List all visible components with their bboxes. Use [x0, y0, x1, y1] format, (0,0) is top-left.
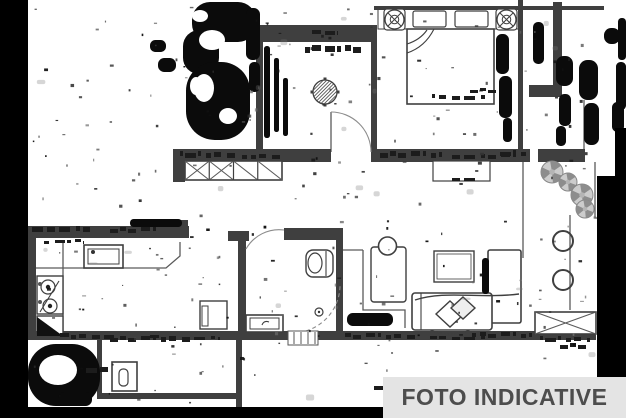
speckle: [82, 295, 86, 296]
noise-dash: [481, 95, 485, 99]
speckle: [43, 197, 44, 200]
speckle: [478, 162, 482, 165]
speckle: [419, 203, 422, 206]
smudge: [37, 80, 46, 84]
speckle: [101, 298, 103, 299]
speckle: [360, 303, 362, 305]
noise-blob: [556, 126, 566, 146]
speckle: [96, 29, 99, 31]
plant-4: [576, 200, 594, 218]
photo-indicative-banner: FOTO INDICATIVE: [383, 377, 626, 418]
speckle: [136, 324, 137, 327]
lower-room-south-wall: [97, 393, 242, 399]
speckle: [551, 177, 552, 180]
smudge: [341, 127, 346, 131]
speckle: [229, 165, 231, 167]
speckle: [362, 171, 365, 173]
speckle: [343, 196, 346, 199]
speckle: [443, 265, 445, 267]
speckle: [200, 215, 203, 218]
wall-sconce-left: [384, 9, 405, 30]
speckle: [156, 254, 159, 256]
noise-blob: [612, 102, 624, 132]
noise-dash: [153, 227, 156, 231]
noise-dash: [558, 336, 561, 340]
speckle: [475, 170, 478, 172]
noise-dash: [394, 334, 401, 338]
speckle: [219, 284, 221, 285]
speckle: [252, 233, 254, 236]
noise-blob: [496, 34, 509, 74]
speckle: [79, 308, 81, 310]
speckle: [504, 221, 507, 223]
speckle: [123, 304, 126, 307]
speckle: [155, 45, 157, 46]
speckle: [418, 334, 420, 336]
speckle: [583, 168, 586, 169]
speckle: [119, 205, 122, 208]
smudge: [552, 46, 558, 50]
speckle: [279, 314, 283, 316]
hall-ceiling-light-tick: [311, 91, 314, 94]
speckle: [318, 335, 320, 337]
speckle: [480, 274, 483, 277]
speckle: [293, 87, 296, 89]
noise-dash: [325, 31, 335, 35]
speckle: [524, 70, 526, 71]
speckle: [386, 369, 387, 371]
noise-dash: [214, 152, 221, 157]
speckle: [270, 54, 272, 55]
speckle: [394, 140, 396, 143]
water-heater: [112, 362, 137, 391]
speckle: [139, 199, 142, 202]
speckle: [52, 317, 55, 319]
noise-dash: [259, 154, 266, 158]
noise-dash: [378, 333, 381, 337]
noise-dash: [182, 338, 190, 342]
speckle: [110, 65, 114, 67]
speckle: [534, 31, 535, 33]
wardrobe-window-southeast: [535, 312, 596, 334]
noise-dash: [439, 95, 446, 99]
speckle: [387, 220, 389, 222]
speckle: [112, 364, 114, 366]
speckle: [56, 120, 59, 121]
speckle: [573, 344, 576, 346]
right-border-bar: [597, 176, 626, 378]
speckle: [154, 390, 156, 391]
speckle: [109, 393, 110, 395]
noise-dash: [390, 151, 396, 156]
noise-dash: [60, 333, 69, 337]
south-bedroom-wall-right2: [538, 149, 585, 162]
bed: [407, 29, 494, 104]
speckle: [313, 172, 316, 175]
speckle: [311, 159, 315, 162]
speckle: [110, 121, 112, 123]
speckle: [183, 66, 185, 67]
smudge: [306, 395, 314, 401]
noise-blob: [604, 28, 620, 44]
noise-dash: [76, 226, 80, 231]
speckle: [533, 38, 537, 40]
noise-dash: [312, 45, 321, 51]
speckle: [193, 165, 197, 167]
stove-knob-1: [38, 282, 42, 286]
speckle: [222, 365, 223, 367]
speckle: [154, 23, 157, 24]
speckle: [526, 129, 527, 130]
speckle: [446, 110, 450, 111]
speckle: [370, 27, 372, 28]
noise-dash: [47, 227, 55, 232]
speckle: [338, 161, 341, 163]
speckle: [191, 298, 193, 301]
speckle: [377, 77, 380, 80]
noise-hole: [192, 10, 208, 22]
speckle: [226, 317, 228, 319]
noise-dash: [83, 241, 84, 244]
speckle: [455, 321, 458, 322]
noise-dash: [337, 46, 341, 52]
speckle: [370, 13, 373, 15]
noise-dash: [488, 90, 496, 93]
noise-dash: [439, 152, 442, 157]
speckle: [132, 179, 135, 181]
speckle: [203, 277, 204, 278]
noise-dash: [380, 153, 388, 158]
speckle: [105, 21, 106, 23]
noise-dash: [185, 153, 196, 158]
smudge: [341, 17, 347, 21]
speckle: [199, 372, 202, 375]
speckle: [376, 275, 377, 278]
noise-dash: [325, 46, 335, 52]
speckle: [573, 334, 575, 336]
noise-dash: [180, 151, 183, 156]
noise-dash: [161, 338, 166, 342]
speckle: [545, 114, 548, 117]
speckle: [267, 23, 269, 26]
noise-blob: [556, 56, 573, 86]
bath-east-wall: [336, 228, 343, 334]
speckle: [189, 248, 191, 250]
smudge: [218, 186, 224, 191]
noise-dash: [211, 336, 215, 339]
speckle: [71, 84, 75, 87]
noise-dash: [578, 345, 586, 349]
speckle: [479, 90, 483, 92]
noise-dash: [398, 153, 406, 158]
noise-dash: [501, 332, 510, 336]
noise-dash: [32, 227, 43, 232]
speckle: [391, 352, 393, 354]
speckle: [368, 323, 370, 326]
speckle: [349, 100, 353, 103]
noise-dash: [407, 335, 415, 339]
plant-2-center: [566, 180, 571, 185]
noise-dash: [521, 334, 526, 338]
noise-blob: [579, 60, 598, 100]
noise-dash: [337, 31, 338, 35]
noise-hole: [39, 355, 77, 385]
speckle: [38, 136, 40, 138]
noise-dash: [439, 336, 446, 339]
speckle: [388, 249, 390, 250]
noise-dash: [100, 367, 108, 372]
speckle: [160, 258, 163, 259]
speckle: [433, 116, 435, 117]
coffee-table: [434, 251, 474, 282]
speckle: [585, 152, 588, 155]
speckle: [138, 173, 140, 176]
speckle: [156, 125, 158, 127]
speckle: [149, 248, 151, 249]
noise-dash: [452, 337, 460, 340]
sofa-chaise: [488, 250, 521, 323]
noise-dash: [75, 239, 81, 242]
plant-4-center: [583, 207, 588, 212]
speckle: [200, 343, 202, 345]
speckle: [94, 188, 97, 189]
noise-blob: [58, 392, 92, 406]
smudge: [374, 191, 380, 196]
speckle: [347, 8, 350, 10]
banner-label: FOTO INDICATIVE: [402, 384, 608, 411]
noise-dash: [464, 337, 475, 340]
noise-dash: [411, 151, 420, 156]
noise-blob: [618, 18, 626, 60]
speckle: [242, 121, 245, 122]
speckle: [543, 358, 546, 360]
noise-dash: [452, 96, 460, 100]
speckle: [426, 68, 427, 69]
speckle: [355, 196, 358, 198]
speckle: [33, 141, 35, 143]
smudge: [588, 352, 595, 357]
plant-1-center: [549, 169, 555, 175]
speckle: [334, 103, 336, 104]
noise-dash: [169, 337, 176, 341]
plant-3-center: [579, 192, 585, 198]
speckle: [435, 350, 438, 351]
speckle: [122, 285, 123, 286]
noise-dash: [464, 155, 475, 159]
speckle: [463, 133, 466, 135]
floorplan-screenshot: FOTO INDICATIVE: [0, 0, 626, 418]
door-threshold-frame: [288, 331, 318, 345]
noise-blob: [264, 46, 270, 138]
speckle: [497, 111, 498, 113]
speckle: [423, 20, 426, 22]
noise-dash: [545, 338, 556, 342]
noise-blob: [347, 313, 393, 326]
noise-dash: [305, 47, 310, 53]
noise-dash: [470, 90, 478, 93]
speckle: [51, 332, 54, 333]
noise-blob: [158, 58, 176, 72]
noise-dash: [141, 336, 150, 340]
speckle: [206, 228, 210, 230]
speckle: [74, 251, 78, 253]
noise-dash: [206, 153, 211, 158]
smudge: [462, 298, 471, 300]
speckle: [554, 60, 557, 63]
speckle: [332, 247, 334, 250]
stove-knob-2: [38, 300, 42, 304]
lower-room-east-wall: [236, 340, 242, 410]
speckle: [279, 33, 282, 34]
noise-blob: [150, 40, 166, 52]
noise-dash: [353, 47, 361, 53]
speckle: [425, 241, 428, 243]
speckle: [76, 183, 78, 185]
speckle: [365, 363, 368, 364]
noise-dash: [560, 345, 568, 349]
smudge: [256, 85, 261, 90]
speckle: [390, 296, 394, 297]
speckle: [382, 56, 386, 58]
speckle: [289, 44, 290, 46]
speckle: [580, 301, 584, 302]
speckle: [295, 198, 297, 199]
speckle: [142, 34, 144, 36]
noise-dash: [574, 337, 581, 341]
noise-dash: [92, 335, 100, 339]
speckle: [569, 160, 573, 162]
window-wall-endcap: [173, 149, 185, 182]
speckle: [80, 368, 83, 370]
noise-dash: [513, 332, 516, 336]
noise-dash: [110, 338, 118, 342]
speckle: [86, 124, 89, 126]
noise-blob: [584, 103, 599, 145]
bath-west-wall: [238, 240, 246, 334]
speckle: [249, 119, 251, 120]
noise-blob: [274, 58, 279, 132]
speckle: [311, 47, 313, 50]
smudge: [356, 185, 364, 190]
speckle: [198, 283, 202, 284]
noise-dash: [59, 227, 70, 232]
speckle: [59, 252, 60, 254]
speckle: [369, 84, 371, 86]
noise-dash: [153, 336, 156, 340]
noise-dash: [120, 227, 126, 231]
speckle: [219, 256, 221, 258]
noise-dash: [488, 155, 496, 159]
speckle: [277, 45, 280, 46]
noise-blob: [283, 78, 288, 136]
right-border-bar-upper: [615, 128, 626, 178]
smudge: [276, 303, 281, 308]
speckle: [82, 309, 84, 311]
noise-dash: [55, 240, 65, 243]
speckle: [581, 44, 584, 47]
noise-dash: [110, 229, 118, 233]
speckle: [86, 80, 88, 82]
noise-hole: [219, 108, 237, 124]
noise-dash: [67, 240, 71, 243]
speckle: [552, 241, 555, 243]
noise-blob: [533, 22, 544, 64]
speckle: [35, 9, 37, 10]
noise-dash: [345, 45, 351, 51]
bath-top-wall: [284, 228, 342, 240]
speckle: [264, 278, 268, 281]
speckle: [458, 312, 460, 314]
speckle: [316, 157, 318, 160]
speckle: [459, 334, 463, 336]
noise-dash: [86, 368, 97, 373]
pillow-right: [455, 11, 488, 27]
speckle: [555, 97, 558, 99]
noise-dash: [366, 333, 375, 337]
speckle: [174, 327, 176, 328]
noise-dash: [128, 229, 136, 233]
speckle: [272, 310, 273, 312]
noise-dash: [500, 152, 511, 156]
noise-dash: [431, 153, 436, 158]
noise-dash: [227, 153, 235, 158]
speckle: [564, 259, 565, 260]
speckle: [283, 12, 287, 13]
speckle: [335, 284, 337, 287]
stove-burner-2-dot: [48, 304, 52, 308]
bottom-border-bar: [0, 407, 384, 418]
speckle: [321, 35, 324, 38]
speckle: [209, 115, 212, 116]
noise-dash: [83, 227, 90, 232]
speckle: [474, 322, 477, 324]
noise-blob: [559, 94, 571, 126]
speckle: [549, 311, 551, 312]
noise-dash: [472, 333, 476, 337]
speckle: [309, 330, 311, 332]
speckle: [441, 233, 442, 236]
noise-blob: [130, 219, 182, 227]
speckle: [135, 338, 136, 341]
speckle: [329, 89, 331, 91]
door-threshold: [288, 331, 318, 345]
speckle: [569, 58, 570, 61]
noise-dash: [540, 336, 543, 340]
speckle: [190, 236, 194, 238]
speckle: [165, 274, 167, 276]
noise-dash: [141, 227, 150, 231]
speckle: [235, 108, 236, 110]
noise-blob: [503, 118, 512, 142]
speckle: [331, 53, 334, 56]
speckle: [594, 216, 597, 218]
speckle: [475, 25, 478, 27]
speckle: [93, 159, 94, 162]
smudge: [516, 288, 523, 291]
noise-dash: [464, 96, 475, 100]
speckle: [544, 326, 546, 329]
smudge: [467, 189, 474, 194]
noise-dash: [242, 155, 247, 159]
speckle: [59, 395, 61, 397]
noise-dash: [488, 334, 496, 338]
speckle: [240, 357, 244, 360]
noise-dash: [312, 30, 321, 34]
noise-dash: [345, 333, 351, 337]
noise-dash: [521, 152, 526, 156]
speckle: [260, 296, 261, 298]
speckle: [386, 227, 388, 230]
